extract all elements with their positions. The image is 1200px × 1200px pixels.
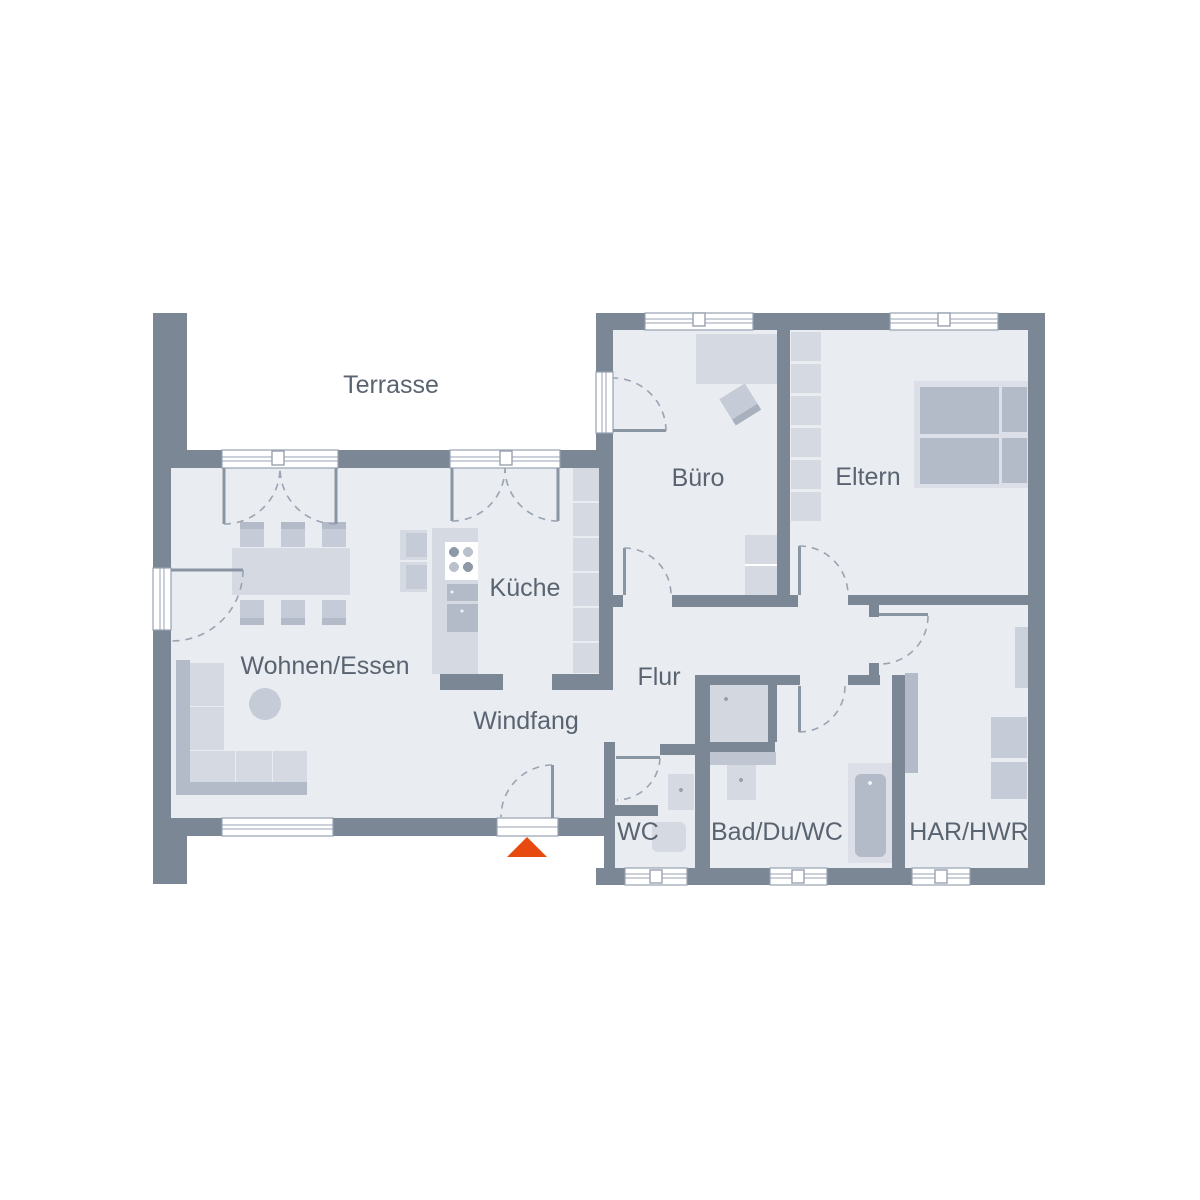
room-label-har-hwr: HAR/HWR <box>909 818 1028 846</box>
window-living <box>222 818 333 836</box>
floor-passage <box>596 687 613 745</box>
dining-table <box>232 522 350 625</box>
bathtub <box>848 763 892 863</box>
room-label-flur: Flur <box>637 663 680 691</box>
room-label-buero: Büro <box>672 464 725 492</box>
window-wc <box>625 868 687 885</box>
room-label-wc: WC <box>617 818 659 846</box>
window-bath <box>770 868 827 885</box>
bath-sink <box>727 765 756 800</box>
window-utility <box>912 868 970 885</box>
room-label-windfang: Windfang <box>473 707 579 735</box>
window-office <box>645 313 753 330</box>
room-label-kueche: Küche <box>490 574 561 602</box>
floor-plan-svg: Terrasse Wohnen/Essen Küche Windfang Flu… <box>0 0 1200 1200</box>
washer <box>991 717 1027 758</box>
tall-cabinet <box>905 673 918 773</box>
radiator <box>1015 627 1028 688</box>
vanity <box>710 752 776 765</box>
room-label-eltern: Eltern <box>835 463 900 491</box>
coffee-table <box>249 688 281 720</box>
shower <box>710 685 768 742</box>
dryer <box>991 762 1027 799</box>
window-parents <box>890 313 998 330</box>
desk <box>696 334 782 384</box>
floor-plan: Terrasse Wohnen/Essen Küche Windfang Flu… <box>0 0 1200 1200</box>
room-label-wohnen-essen: Wohnen/Essen <box>240 652 409 680</box>
office-cabinet <box>745 535 777 595</box>
room-label-terrasse: Terrasse <box>343 371 439 399</box>
entrance-marker-icon <box>507 837 547 857</box>
room-label-bad-du-wc: Bad/Du/WC <box>711 818 843 846</box>
double-bed <box>914 381 1028 488</box>
wc-sink <box>668 774 694 810</box>
